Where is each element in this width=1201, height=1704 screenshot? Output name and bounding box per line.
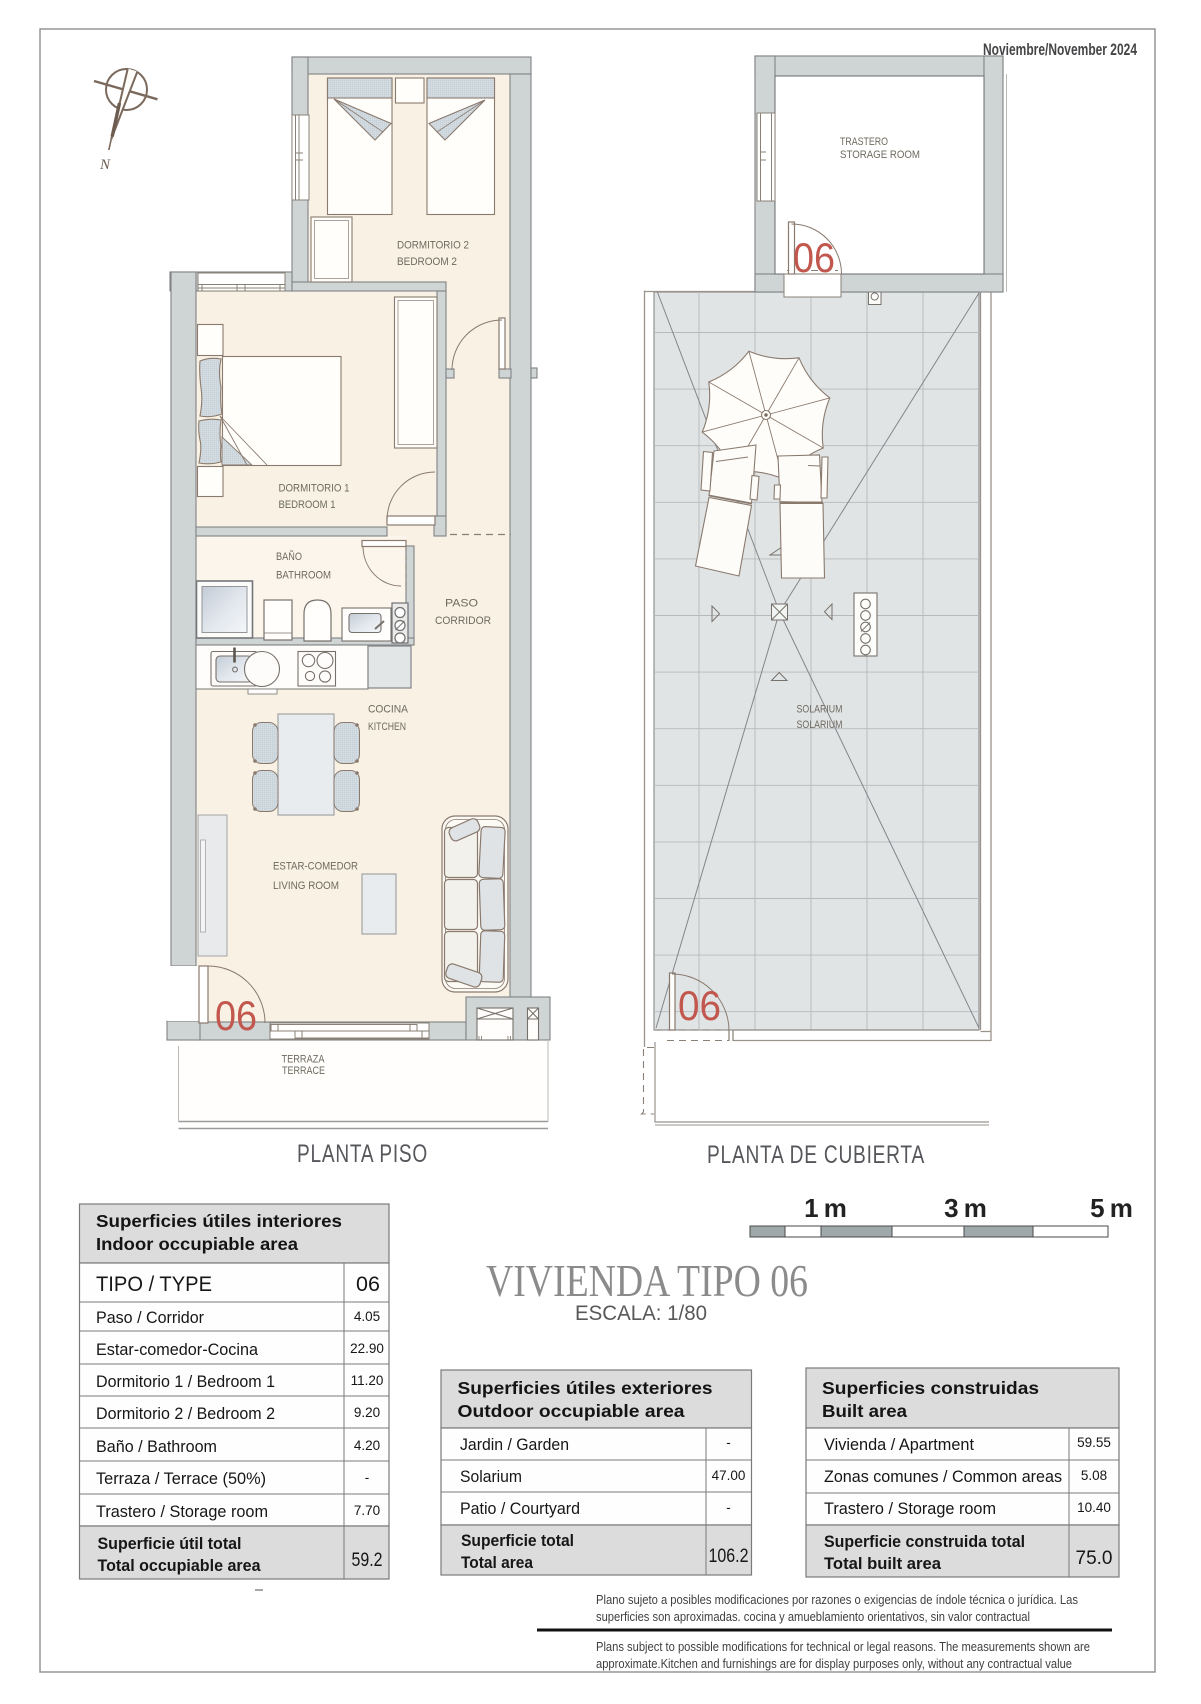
svg-text:BEDROOM 2: BEDROOM 2 (397, 256, 457, 268)
svg-text:Noviembre/November 2024: Noviembre/November 2024 (983, 40, 1137, 59)
svg-text:-: - (365, 1470, 370, 1485)
svg-text:5 m: 5 m (1090, 1193, 1132, 1223)
svg-text:5.08: 5.08 (1081, 1468, 1107, 1483)
svg-text:Patio / Courtyard: Patio / Courtyard (460, 1500, 580, 1518)
svg-text:approximate.Kitchen and furnis: approximate.Kitchen and furnishings are … (596, 1656, 1072, 1671)
svg-text:Superficies útiles interiores: Superficies útiles interiores (96, 1211, 342, 1231)
svg-text:N: N (99, 157, 111, 173)
svg-text:59.2: 59.2 (352, 1550, 383, 1571)
svg-text:1 m: 1 m (804, 1193, 846, 1223)
svg-text:Built area: Built area (822, 1401, 907, 1421)
svg-text:06: 06 (356, 1272, 380, 1296)
svg-text:COCINA: COCINA (368, 704, 409, 716)
svg-text:-: - (726, 1435, 731, 1450)
svg-text:Plans subject to possible modi: Plans subject to possible modifications … (596, 1639, 1090, 1654)
svg-text:Vivienda / Apartment: Vivienda / Apartment (824, 1436, 975, 1454)
svg-text:BATHROOM: BATHROOM (276, 570, 331, 582)
svg-text:106.2: 106.2 (709, 1546, 749, 1567)
svg-text:Total occupiable area: Total occupiable area (98, 1557, 262, 1575)
svg-text:06: 06 (793, 234, 835, 281)
svg-text:DORMITORIO 2: DORMITORIO 2 (397, 240, 469, 252)
svg-text:06: 06 (678, 982, 721, 1029)
svg-text:10.40: 10.40 (1077, 1500, 1111, 1515)
svg-text:Zonas comunes / Common areas: Zonas comunes / Common areas (824, 1468, 1062, 1486)
svg-text:Trastero / Storage room: Trastero / Storage room (96, 1503, 268, 1521)
svg-text:Superficie total: Superficie total (461, 1532, 574, 1550)
svg-text:superficies son aproximadas. c: superficies son aproximadas. cocina y am… (596, 1609, 1030, 1624)
svg-text:4.05: 4.05 (354, 1309, 380, 1324)
svg-text:Superficies útiles exteriores: Superficies útiles exteriores (458, 1378, 713, 1398)
svg-text:TERRACE: TERRACE (282, 1065, 325, 1077)
svg-text:STORAGE ROOM: STORAGE ROOM (840, 149, 920, 161)
svg-text:Terraza / Terrace (50%): Terraza / Terrace (50%) (96, 1470, 266, 1488)
svg-text:Paso / Corridor: Paso / Corridor (96, 1309, 205, 1327)
svg-text:06: 06 (215, 992, 257, 1039)
svg-text:Baño / Bathroom: Baño / Bathroom (96, 1438, 217, 1456)
svg-text:75.0: 75.0 (1076, 1548, 1113, 1569)
svg-text:TERRAZA: TERRAZA (282, 1054, 326, 1066)
svg-text:DORMITORIO 1: DORMITORIO 1 (279, 483, 350, 495)
svg-text:Solarium: Solarium (460, 1468, 522, 1486)
svg-text:47.00: 47.00 (712, 1468, 746, 1483)
svg-text:SOLARIUM: SOLARIUM (797, 704, 843, 716)
svg-text:ESTAR-COMEDOR: ESTAR-COMEDOR (273, 861, 358, 873)
svg-text:Superficies construidas: Superficies construidas (822, 1378, 1039, 1398)
svg-text:Indoor occupiable area: Indoor occupiable area (96, 1234, 298, 1254)
svg-text:59.55: 59.55 (1077, 1435, 1111, 1450)
svg-text:Trastero / Storage room: Trastero / Storage room (824, 1500, 996, 1518)
svg-text:PLANTA PISO: PLANTA PISO (297, 1140, 428, 1168)
svg-text:22.90: 22.90 (350, 1341, 384, 1356)
svg-text:PLANTA DE CUBIERTA: PLANTA DE CUBIERTA (707, 1141, 925, 1169)
svg-text:BEDROOM 1: BEDROOM 1 (279, 499, 336, 511)
svg-text:BAÑO: BAÑO (276, 550, 302, 563)
svg-text:Dormitorio 1 / Bedroom 1: Dormitorio 1 / Bedroom 1 (96, 1373, 275, 1391)
svg-text:Estar-comedor-Cocina: Estar-comedor-Cocina (96, 1341, 258, 1359)
svg-text:3 m: 3 m (944, 1193, 986, 1223)
svg-text:TIPO / TYPE: TIPO / TYPE (96, 1272, 212, 1296)
svg-text:PASO: PASO (445, 598, 478, 610)
svg-text:4.20: 4.20 (354, 1438, 380, 1453)
svg-text:7.70: 7.70 (354, 1503, 380, 1518)
svg-text:TRASTERO: TRASTERO (840, 136, 888, 148)
svg-text:11.20: 11.20 (351, 1373, 384, 1388)
svg-text:KITCHEN: KITCHEN (368, 721, 406, 733)
svg-text:-: - (726, 1500, 731, 1515)
svg-text:Jardin / Garden: Jardin / Garden (460, 1436, 569, 1454)
svg-text:Total area: Total area (461, 1554, 534, 1572)
svg-text:Superficie útil total: Superficie útil total (98, 1535, 242, 1553)
svg-text:SOLARIUM: SOLARIUM (797, 719, 843, 731)
svg-text:9.20: 9.20 (354, 1405, 380, 1420)
svg-text:VIVIENDA TIPO 06: VIVIENDA TIPO 06 (486, 1255, 808, 1306)
svg-text:Outdoor occupiable area: Outdoor occupiable area (458, 1401, 685, 1421)
svg-text:ESCALA: 1/80: ESCALA: 1/80 (575, 1302, 707, 1325)
svg-text:Superficie construida total: Superficie construida total (824, 1533, 1025, 1551)
svg-text:Total built area: Total built area (824, 1555, 942, 1573)
svg-text:LIVING ROOM: LIVING ROOM (273, 880, 339, 892)
svg-text:Dormitorio 2 / Bedroom 2: Dormitorio 2 / Bedroom 2 (96, 1405, 275, 1423)
svg-text:CORRIDOR: CORRIDOR (435, 615, 491, 627)
svg-text:Plano sujeto a posibles modifi: Plano sujeto a posibles modificaciones p… (596, 1592, 1078, 1607)
